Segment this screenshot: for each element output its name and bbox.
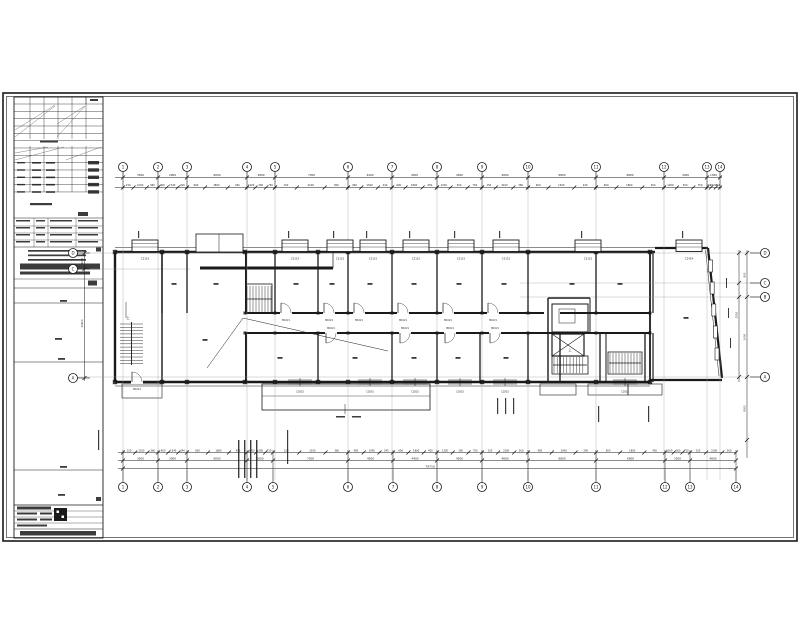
column	[649, 312, 652, 315]
dim-text: 750	[698, 183, 703, 187]
stamp-detail	[62, 516, 65, 519]
bay-window	[575, 240, 601, 252]
stamp-smudge	[88, 183, 99, 186]
text-smudge	[32, 184, 41, 186]
window-dim-flag	[682, 231, 683, 238]
bay-window	[132, 240, 158, 252]
edge-note-smudge	[55, 338, 62, 340]
door-code: M1021	[491, 327, 499, 330]
window-code: C1815	[411, 391, 419, 394]
text-smudge	[40, 519, 52, 521]
window-dim-flag	[366, 231, 367, 238]
panel-mark	[88, 281, 97, 286]
stair-up-label: 上	[568, 347, 571, 352]
window-dim-flag	[454, 231, 455, 238]
text-smudge	[46, 177, 55, 179]
room-label-smudge	[412, 357, 417, 359]
dim-text: 1200	[667, 183, 674, 187]
stamp-detail	[57, 511, 60, 514]
note-vertical-smudge	[598, 406, 599, 422]
room-label-smudge	[412, 283, 417, 285]
dim-text: 4600	[501, 173, 508, 177]
room-label-smudge	[570, 283, 575, 285]
window-dim-flag	[138, 231, 139, 238]
text-smudge	[36, 234, 45, 236]
grid-label: D	[71, 251, 74, 256]
window-dim-flag	[409, 231, 410, 238]
dim-text: 4300	[682, 173, 689, 177]
window-code: C2115	[457, 257, 466, 261]
spec-note-column	[238, 440, 239, 478]
grid-bubbles: 12345678910111213141234567891011121314DC…	[69, 163, 770, 492]
room-partitions	[113, 250, 652, 384]
column	[649, 332, 652, 335]
slant-dim-smudge	[726, 278, 727, 288]
column	[347, 332, 350, 335]
column	[527, 312, 530, 315]
dim-text: 300	[683, 183, 688, 187]
dim-text: 750	[268, 183, 273, 187]
dim-text: 2500	[674, 456, 681, 460]
grid-label: 10	[525, 485, 531, 490]
dim-text: 150	[487, 183, 492, 187]
panel-mark	[96, 248, 101, 252]
dim-text: 900	[160, 183, 165, 187]
room-label-smudge	[214, 283, 219, 285]
column	[390, 380, 394, 384]
door-gap	[323, 311, 335, 315]
dim-text: 300	[258, 449, 263, 452]
grid-label: 14	[717, 165, 723, 170]
dim-text: 300	[457, 183, 462, 187]
dim-text: 240	[583, 183, 588, 187]
grid-label: 6	[347, 485, 350, 490]
grid-label: 11	[593, 485, 599, 490]
room-label-smudge	[353, 357, 358, 359]
grid-label: C	[72, 267, 75, 272]
grid-label: 1	[122, 485, 125, 490]
dim-text: 450	[427, 183, 432, 187]
window-code: C2115	[584, 257, 593, 261]
dim-text: 1200	[441, 183, 448, 187]
column	[113, 380, 117, 384]
grid-label: 10	[525, 165, 531, 170]
text-smudge	[32, 177, 41, 179]
room-label-smudge	[618, 283, 623, 285]
stamp-smudge	[88, 168, 99, 171]
column	[526, 250, 530, 254]
grid-label: 2	[157, 485, 160, 490]
dim-text: 600	[398, 449, 403, 452]
dim-text: 150	[284, 183, 289, 187]
room-label-smudge	[330, 283, 335, 285]
dim-text: 4600	[709, 456, 716, 460]
text-smudge	[50, 234, 72, 236]
door-code: M1021	[399, 319, 407, 322]
text-smudge	[32, 191, 41, 193]
dim-text: 1200	[249, 449, 256, 452]
titleblock-footer-smudge	[20, 531, 96, 536]
dim-text: 2100	[137, 183, 144, 187]
door-code: M1021	[282, 319, 290, 322]
bay-window	[676, 240, 702, 252]
dim-text: 4500	[367, 456, 374, 460]
stamp-smudge	[88, 176, 99, 179]
dim-text: 1200	[248, 183, 255, 187]
room-label-smudge	[294, 283, 299, 285]
text-smudge	[17, 169, 25, 170]
edge-note-smudge	[58, 358, 65, 360]
column	[435, 250, 439, 254]
door-code: M1021	[444, 319, 452, 322]
grid-label: 13	[704, 165, 710, 170]
column	[436, 312, 439, 315]
edge-note-smudge	[58, 494, 65, 496]
door-code: M1021	[325, 319, 333, 322]
dim-text: 4500	[456, 456, 463, 460]
schedule-diagonal	[15, 105, 55, 130]
text-smudge	[40, 513, 52, 515]
dim-text: 1800	[213, 183, 220, 187]
window-code: C1815	[621, 391, 629, 394]
text-smudge	[78, 227, 98, 229]
column	[595, 312, 598, 315]
dim-text: 4600	[501, 456, 508, 460]
grid-label: 6	[347, 165, 350, 170]
dense-note-smudge	[20, 264, 100, 270]
column	[274, 332, 277, 335]
note-vertical-smudge	[287, 430, 288, 464]
annotation-smudges	[98, 278, 731, 478]
spec-note-column	[256, 440, 257, 478]
column	[160, 250, 164, 254]
text-smudge	[50, 220, 72, 222]
note-vertical-smudge	[505, 398, 506, 414]
room-label-smudge	[203, 339, 208, 341]
dim-text: 240	[383, 183, 388, 187]
note-vertical-smudge	[497, 398, 498, 414]
dim-text: 360	[334, 449, 339, 452]
grid-label: 5	[272, 485, 275, 490]
door-code: M1021	[327, 327, 335, 330]
schedule-diagonal	[15, 147, 64, 160]
column	[316, 380, 320, 384]
dim-text: 300	[458, 449, 463, 452]
dim-text: 4400	[366, 173, 373, 177]
window-code: C2115	[412, 257, 421, 261]
dim-text: 1540	[561, 449, 568, 452]
dim-text: 4500	[411, 173, 418, 177]
slant-dim-smudge	[730, 338, 731, 348]
bay-window	[327, 240, 353, 252]
dim-text: 10900	[80, 319, 84, 327]
edge-note-smudge	[60, 300, 67, 302]
dim-text: 600	[195, 449, 200, 452]
column	[113, 250, 117, 254]
window-dim-flag	[288, 231, 289, 238]
approval-stamp	[54, 508, 67, 521]
grid-label: 8	[436, 165, 439, 170]
dim-text: 1800	[629, 449, 636, 452]
dim-text: 600	[606, 449, 611, 452]
text-smudge	[32, 162, 41, 164]
text-smudge	[17, 519, 37, 521]
dim-text: 450	[652, 449, 657, 452]
dim-text: 2800	[257, 173, 264, 177]
column	[480, 250, 484, 254]
dim-text: 2900	[169, 456, 176, 460]
column	[527, 332, 530, 335]
dim-text: 4400	[411, 456, 418, 460]
grid-label: 14	[733, 485, 739, 490]
grid-label: 5	[274, 165, 277, 170]
dim-text: 1800	[413, 449, 420, 452]
dim-text: 360	[716, 183, 721, 187]
column	[243, 250, 247, 254]
dim-text: 150	[488, 449, 493, 452]
dim-text: 2100	[309, 449, 316, 452]
stamp-smudge	[88, 161, 99, 164]
text-smudge	[17, 184, 25, 185]
text-smudge	[46, 169, 55, 171]
note-line-smudge	[28, 259, 86, 261]
grid-label: 3	[186, 165, 189, 170]
column	[273, 380, 277, 384]
grid-label: 7	[391, 165, 394, 170]
dim-text: 7300	[308, 173, 315, 177]
grid-label: 4	[246, 485, 249, 490]
column	[648, 380, 652, 384]
panel-caption-smudge	[30, 203, 52, 205]
bay-window	[282, 240, 308, 252]
column	[594, 380, 598, 384]
door-code: M1021	[489, 319, 497, 322]
text-smudge	[17, 191, 25, 192]
dim-text: 1800	[215, 449, 222, 452]
room-label-smudge	[172, 283, 177, 285]
window-code: C2115	[502, 257, 511, 261]
window-code: C1815	[501, 391, 509, 394]
dim-text: 750	[472, 183, 477, 187]
panel-mark	[96, 497, 101, 501]
text-smudge	[17, 177, 25, 178]
dim-text: 750	[267, 449, 272, 452]
door-gap	[399, 331, 411, 335]
dim-text: 4500	[456, 173, 463, 177]
room-label-smudge	[502, 283, 507, 285]
door-gap	[325, 331, 337, 335]
sheet-frame	[3, 93, 797, 541]
dim-text: 360	[334, 183, 339, 187]
door-gap	[397, 311, 409, 315]
column	[481, 312, 484, 315]
grid-label: 2	[157, 165, 160, 170]
column	[648, 250, 652, 254]
dim-text: 150	[126, 183, 131, 187]
dim-text: 360	[727, 449, 732, 452]
dim-text: 300	[258, 183, 263, 187]
column	[244, 332, 247, 335]
column	[526, 380, 530, 384]
dim-text: 150	[696, 449, 701, 452]
dim-text: 1540	[366, 183, 373, 187]
door-code: M1021	[133, 388, 141, 391]
column	[244, 312, 247, 315]
text-smudge	[16, 241, 30, 243]
dense-note-smudge	[20, 272, 90, 275]
bay-window	[360, 240, 386, 252]
dim-text: 6000	[213, 173, 220, 177]
dim-text: 6900	[627, 456, 634, 460]
stair-treads: 上上	[120, 286, 640, 373]
text-smudge	[46, 191, 55, 193]
window-dim-flag	[499, 231, 500, 238]
dim-text: 2550	[735, 311, 739, 318]
stair-up-label: 上	[126, 315, 130, 320]
dim-text: 600	[604, 183, 609, 187]
titleblock-text	[17, 507, 51, 510]
dimension-lines: 3500290060002800730044004500450046006800…	[80, 173, 749, 471]
door-gap	[444, 331, 456, 335]
dim-text: 6800	[558, 173, 565, 177]
porch-label-smudge	[352, 416, 361, 418]
text-smudge	[78, 241, 98, 243]
dim-text: 600	[396, 183, 401, 187]
window-code: C2115	[291, 257, 300, 261]
dim-text: 240	[180, 183, 185, 187]
door-gap	[442, 311, 454, 315]
window-dim-flag	[581, 231, 582, 238]
grid-label: 12	[661, 165, 667, 170]
column	[480, 380, 484, 384]
column	[390, 250, 394, 254]
door-gap	[489, 331, 501, 335]
column	[346, 380, 350, 384]
slant-dim-smudge	[728, 308, 729, 318]
dim-text: 6800	[626, 173, 633, 177]
dim-text: 3500	[137, 173, 144, 177]
dim-text: 6800	[558, 456, 565, 460]
door-gap	[280, 311, 292, 315]
dim-text: 900	[354, 449, 359, 452]
text-smudge	[50, 241, 72, 243]
column	[481, 332, 484, 335]
dim-text: 1200	[666, 449, 673, 452]
grid-label: A	[764, 375, 767, 380]
dim-text: 3500	[137, 456, 144, 460]
bay-window	[448, 240, 474, 252]
column	[273, 250, 277, 254]
grid-label: 9	[481, 485, 484, 490]
floorplan-canvas: C2115C2115C2115C2115C2115C2115C2115C2115…	[0, 0, 800, 640]
column	[274, 312, 277, 315]
column	[347, 312, 350, 315]
dim-text: 360	[518, 183, 523, 187]
edge-note-smudge	[60, 466, 67, 468]
grid-label: A	[72, 376, 75, 381]
text-smudge	[36, 227, 45, 229]
dim-text: 1600	[80, 257, 84, 264]
grid-label: 8	[436, 485, 439, 490]
dim-text: 900	[538, 449, 543, 452]
grid-label: 1	[122, 165, 125, 170]
schedule-diagonal	[15, 106, 55, 137]
room-label-smudge	[684, 317, 689, 319]
text-smudge	[16, 227, 30, 229]
room-label-smudge	[368, 283, 373, 285]
text-smudge	[17, 525, 47, 527]
window-code: C2424	[685, 257, 694, 261]
dim-text: 450	[428, 449, 433, 452]
grid-label: 11	[593, 165, 599, 170]
text-smudge	[78, 234, 98, 236]
grid-label: B	[764, 295, 767, 300]
door-gap	[131, 380, 143, 384]
dim-text: 900	[743, 272, 747, 277]
dim-text: 240	[180, 449, 185, 452]
text-smudge	[90, 99, 98, 101]
dim-text: 2100	[308, 183, 315, 187]
column	[391, 312, 394, 315]
title-panel	[14, 97, 103, 538]
panel-mark	[78, 212, 88, 216]
note-vertical-smudge	[513, 398, 514, 414]
stamp-smudge	[88, 190, 99, 193]
dim-text: 1300	[710, 173, 717, 177]
dim-text: 900	[161, 449, 166, 452]
dim-text: 450	[235, 183, 240, 187]
dim-text: 1540	[369, 449, 376, 452]
window-code: C2115	[141, 257, 150, 261]
dim-text: 240	[384, 449, 389, 452]
text-smudge	[36, 241, 45, 243]
dim-text: 1540	[170, 449, 177, 452]
door-gap	[487, 311, 499, 315]
room-label-smudge	[457, 283, 462, 285]
axis-extension-lines	[78, 172, 762, 480]
schedule-diagonal	[66, 147, 101, 160]
text-smudge	[46, 162, 55, 164]
window-dim-flag	[333, 231, 334, 238]
grid-label: 7	[392, 485, 395, 490]
text-smudge	[36, 220, 45, 222]
text-smudge	[50, 227, 72, 229]
dim-text: 6000	[213, 456, 220, 460]
doors: M1021M1021M1021M1021M1021M1021M1021M1021…	[131, 303, 501, 391]
dim-text: 8000	[743, 405, 747, 412]
column	[436, 332, 439, 335]
column	[185, 250, 189, 254]
dim-text: 2100	[711, 449, 718, 452]
text-smudge	[16, 234, 30, 236]
dim-text: 2100	[503, 449, 510, 452]
column	[185, 380, 189, 384]
text-smudge	[40, 141, 58, 143]
grid-label: 13	[687, 485, 693, 490]
window-code: C2115	[369, 257, 378, 261]
spec-note-column	[250, 440, 251, 478]
column	[391, 332, 394, 335]
grid-label: 12	[662, 485, 668, 490]
grid-label: 4	[246, 165, 249, 170]
dim-text: 2100	[138, 449, 145, 452]
door-code: M1021	[446, 327, 454, 330]
dim-text: 360	[150, 449, 155, 452]
dim-overall-text: 79710	[425, 464, 435, 468]
spec-note-column	[244, 440, 245, 478]
dim-text: 360	[150, 183, 155, 187]
cad-sheet: C2115C2115C2115C2115C2115C2115C2115C2115…	[0, 0, 800, 640]
